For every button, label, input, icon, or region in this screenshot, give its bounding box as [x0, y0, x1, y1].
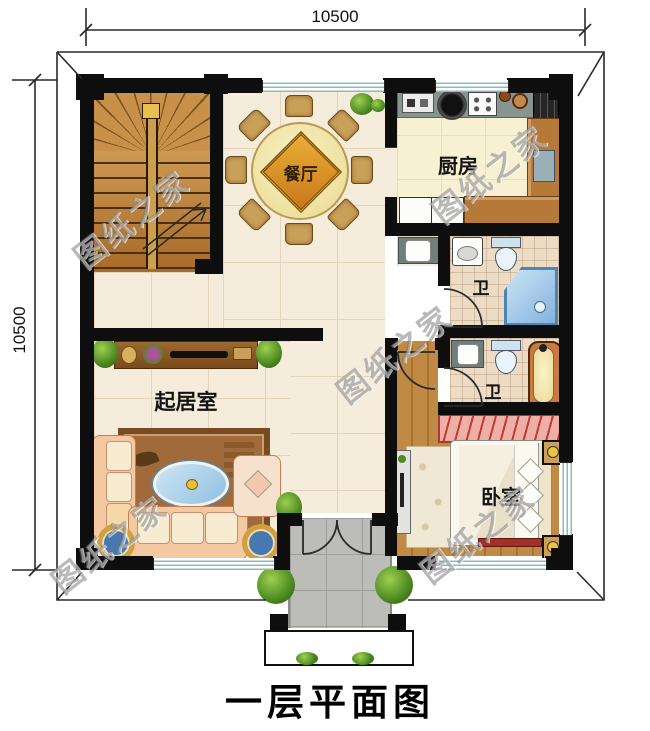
- plant-icon: [92, 338, 118, 368]
- sink-basin: [405, 240, 431, 262]
- dresser-tv: [400, 473, 404, 507]
- wardrobe: [438, 414, 562, 443]
- dimension-left-value: 10500: [10, 245, 30, 415]
- window: [153, 558, 275, 570]
- window: [560, 462, 572, 536]
- armchair-pillow: [244, 470, 272, 498]
- vanity-sink-lower: [451, 340, 484, 368]
- stair-wall: [210, 78, 223, 274]
- kitchen-wall: [385, 91, 397, 147]
- corner-pad: [549, 74, 573, 100]
- bath-wall: [438, 236, 450, 286]
- kitchen-bottom-wall: [385, 223, 573, 236]
- grass-tuft-icon: [352, 652, 374, 665]
- bath-bedroom-wall: [438, 402, 573, 415]
- coffee-table: [153, 461, 229, 507]
- window: [435, 80, 509, 92]
- vanity-sink: [398, 237, 439, 264]
- bath-upper-label: 卫: [468, 274, 494, 299]
- porch-step: [264, 647, 414, 666]
- dining-chair: [225, 156, 247, 184]
- dining-chair: [285, 223, 313, 245]
- bath-lower-label: 卫: [480, 378, 506, 403]
- dimension-top-value: 10500: [250, 7, 420, 27]
- tv-console: [114, 341, 258, 369]
- wall-segment: [80, 78, 94, 570]
- stair-wall-stub: [195, 259, 223, 274]
- spice-jar: [512, 93, 528, 109]
- dining-chair: [351, 156, 373, 184]
- washer-drum: [457, 246, 478, 261]
- living-dining-wall: [80, 328, 323, 341]
- eave-corner-diagonal: [578, 52, 604, 96]
- entry-jamb: [288, 513, 302, 526]
- cooktop-unit: [402, 93, 434, 113]
- cooktop-knob: [420, 99, 428, 107]
- corner-pad: [76, 74, 104, 100]
- stair-newel-cap: [142, 103, 160, 119]
- armchair: [233, 455, 281, 517]
- bush-icon: [375, 566, 413, 604]
- corner-pad: [204, 74, 228, 94]
- bathtub-basin: [533, 347, 554, 403]
- cooktop-knob: [407, 99, 415, 107]
- plant-icon: [371, 99, 385, 112]
- shower-drain: [534, 301, 546, 313]
- grass-tuft-icon: [296, 652, 318, 665]
- bathtub-faucet: [539, 344, 547, 352]
- entry-porch: [288, 518, 392, 628]
- gas-stove: [468, 92, 497, 116]
- floor-plan-canvas: 餐厅: [0, 0, 650, 731]
- dining-chair: [285, 95, 313, 117]
- dresser-plant-icon: [398, 455, 406, 463]
- sink-basin: [457, 344, 479, 365]
- bathtub: [528, 341, 562, 411]
- table-bowl: [186, 479, 198, 490]
- corner-pad: [551, 548, 573, 570]
- living-label: 起居室: [136, 386, 236, 416]
- sofa-cushion: [106, 441, 132, 471]
- kitchen-opening: [385, 147, 397, 199]
- console-flowers: [143, 344, 163, 364]
- hall-floor: [94, 272, 223, 328]
- sofa-cushion: [205, 512, 238, 544]
- wall-segment: [80, 78, 262, 93]
- console-vase: [121, 346, 137, 364]
- tv-screen: [170, 351, 228, 358]
- window: [262, 80, 385, 92]
- entry-jamb: [372, 513, 398, 526]
- kitchen-sink: [437, 90, 467, 120]
- plan-title: 一层平面图: [160, 672, 500, 726]
- eave-corner-diagonal: [577, 572, 604, 600]
- porch-post: [388, 614, 406, 630]
- washing-machine: [452, 237, 483, 266]
- bush-icon: [257, 566, 295, 604]
- lamp-icon: [547, 446, 559, 458]
- console-box: [233, 347, 252, 360]
- dining-label: 餐厅: [284, 160, 318, 185]
- plant-icon: [256, 338, 282, 368]
- sofa-cushion: [171, 512, 204, 544]
- porch-post: [270, 614, 288, 630]
